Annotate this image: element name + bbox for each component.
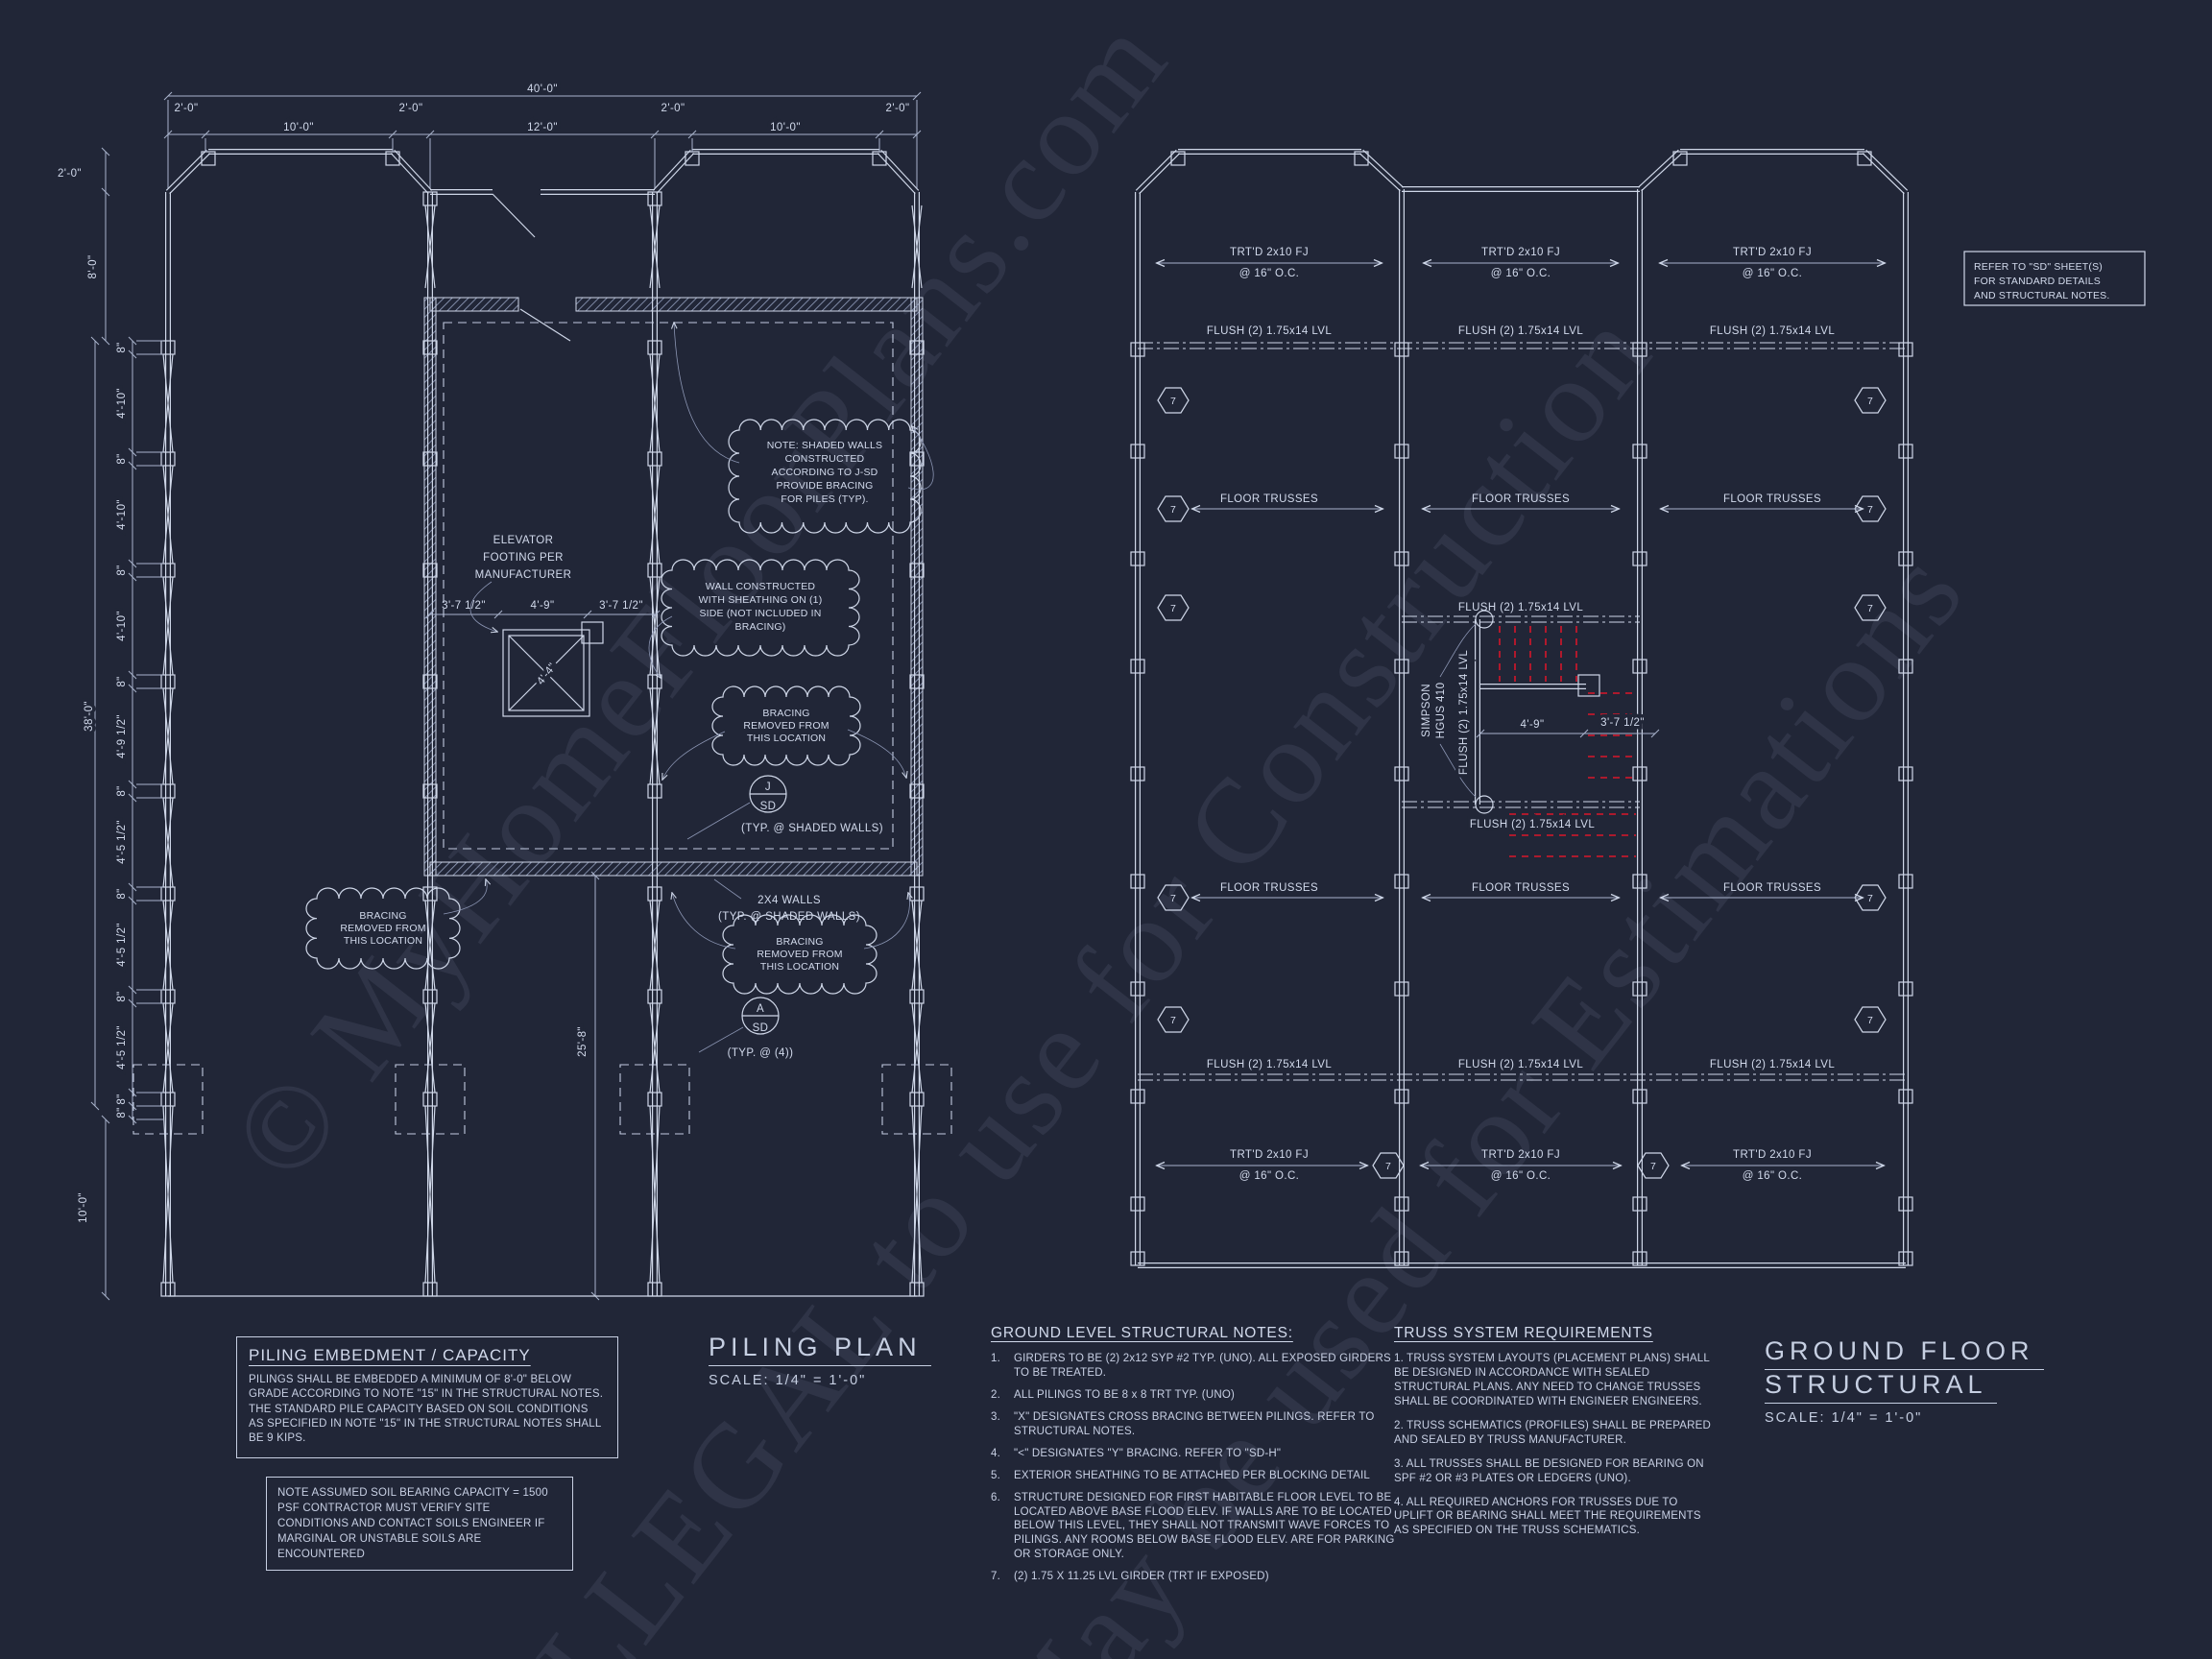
cloud-note: WALL CONSTRUCTED xyxy=(706,581,816,592)
truss-label: FLOOR TRUSSES xyxy=(1220,882,1318,894)
dim: 8" xyxy=(116,676,128,686)
piling-square xyxy=(648,1093,661,1106)
marker-note: (TYP. @ (4)) xyxy=(728,1047,794,1059)
piling-square xyxy=(1633,552,1647,565)
piling-square xyxy=(648,341,661,354)
piling-square xyxy=(648,990,661,1003)
dim: 8" xyxy=(116,1107,128,1118)
dim: 8" xyxy=(116,888,128,899)
girder-label: FLUSH (2) 1.75x14 LVL xyxy=(1710,1059,1835,1070)
x-brace xyxy=(425,205,435,288)
piling-square xyxy=(1131,875,1144,888)
piling-square xyxy=(1395,445,1408,458)
wall-line xyxy=(391,154,428,194)
x-brace xyxy=(912,205,922,288)
wall-label: (TYP. @ SHADED WALLS) xyxy=(718,911,860,923)
ground-floor-title-2: STRUCTURAL xyxy=(1765,1370,1997,1404)
cloud-note: THIS LOCATION xyxy=(747,733,826,744)
dim: 2'-0" xyxy=(661,103,685,114)
piling-square xyxy=(1131,1197,1144,1211)
hexagon-note-number: 7 xyxy=(1170,396,1176,407)
truss-system-requirements: TRUSS SYSTEM REQUIREMENTS 1. TRUSS SYSTE… xyxy=(1394,1325,1711,1548)
shaded-wall xyxy=(424,298,436,876)
dim: 4'-5 1/2" xyxy=(116,820,128,864)
piling-square xyxy=(161,990,175,1003)
piling-square xyxy=(1633,445,1647,458)
ground-note-item: 2.ALL PILINGS TO BE 8 x 8 TRT TYP. (UNO) xyxy=(991,1388,1398,1403)
piling-square xyxy=(1899,552,1912,565)
shaded-wall xyxy=(911,298,923,876)
joist-label: @ 16" O.C. xyxy=(1743,1170,1803,1182)
piling-square xyxy=(161,1283,175,1296)
ground-floor-text: TRT'D 2x10 FJ @ 16" O.C. TRT'D 2x10 FJ @… xyxy=(1207,247,2110,1182)
marker-letter: SD xyxy=(760,801,777,812)
ground-note-item: 7.(2) 1.75 X 11.25 LVL GIRDER (TRT IF EX… xyxy=(991,1570,1398,1584)
cloud-note: BRACING xyxy=(359,910,406,922)
x-brace xyxy=(650,466,660,564)
dim: 2'-0" xyxy=(399,103,423,114)
piling-square xyxy=(161,675,175,688)
cloud-leader xyxy=(674,323,739,463)
cloud-note: PROVIDE BRACING xyxy=(776,480,873,492)
piling-square xyxy=(423,1093,437,1106)
stair-dim: 4'-9" xyxy=(1521,719,1545,731)
x-brace xyxy=(163,1106,173,1283)
wall-label: 2X4 WALLS xyxy=(757,895,821,906)
piling-embedment-body: PILINGS SHALL BE EMBEDDED A MINIMUM OF 8… xyxy=(249,1373,606,1446)
x-brace xyxy=(425,1106,435,1283)
truss-note-item: 2. TRUSS SCHEMATICS (PROFILES) SHALL BE … xyxy=(1394,1419,1711,1448)
piling-square xyxy=(910,887,924,901)
dim: 8" xyxy=(116,565,128,575)
cloud-leader xyxy=(848,730,906,778)
cloud-note: FOR PILES (TYP). xyxy=(781,493,868,505)
truss-note-item: 4. ALL REQUIRED ANCHORS FOR TRUSSES DUE … xyxy=(1394,1496,1711,1539)
cloud-note: BRACING xyxy=(762,708,809,719)
ground-floor-title-1: GROUND FLOOR xyxy=(1765,1336,2044,1370)
x-brace xyxy=(650,1106,660,1283)
dim-overall-width: 40'-0" xyxy=(527,84,558,95)
cloud-note: ACCORDING TO J-SD xyxy=(772,467,878,478)
wall-line xyxy=(1638,150,1678,187)
dashed-pile-footing xyxy=(882,1065,951,1134)
dim: 8" xyxy=(116,342,128,352)
shaded-wall xyxy=(430,298,518,311)
piling-square xyxy=(161,341,175,354)
piling-square xyxy=(648,784,661,798)
hexagon-note-number: 7 xyxy=(1385,1161,1391,1172)
x-brace xyxy=(912,1003,922,1093)
wall-line xyxy=(657,154,694,194)
marker-letter: SD xyxy=(753,1022,769,1034)
x-brace xyxy=(425,1003,435,1093)
truss-label: FLOOR TRUSSES xyxy=(1472,493,1570,505)
joist-label: TRT'D 2x10 FJ xyxy=(1230,1149,1309,1161)
elevator-note: MANUFACTURER xyxy=(475,569,572,581)
piling-plan-scale: SCALE: 1/4" = 1'-0" xyxy=(709,1373,931,1388)
footing-tab xyxy=(582,622,603,643)
piling-square xyxy=(1633,1090,1647,1103)
hexagon-note-number: 7 xyxy=(1867,1015,1873,1026)
cross-bracing xyxy=(163,205,922,1283)
girder-label: FLUSH (2) 1.75x14 LVL xyxy=(1470,819,1595,830)
refer-note: REFER TO "SD" SHEET(S) xyxy=(1974,261,2103,273)
joist-label: TRT'D 2x10 FJ xyxy=(1230,247,1309,258)
girder-label: FLUSH (2) 1.75x14 LVL xyxy=(1458,602,1583,613)
dim: 3'-7 1/2" xyxy=(599,600,643,612)
ground-floor-title-block: GROUND FLOOR STRUCTURAL SCALE: 1/4" = 1'… xyxy=(1765,1336,2044,1426)
piling-square xyxy=(1131,445,1144,458)
girder-label: FLUSH (2) 1.75x14 LVL xyxy=(1207,325,1332,337)
piling-plan-title-block: PILING PLAN SCALE: 1/4" = 1'-0" xyxy=(709,1333,931,1388)
joist-label: TRT'D 2x10 FJ xyxy=(1733,1149,1812,1161)
hexagon-note-number: 7 xyxy=(1170,603,1176,614)
x-brace xyxy=(163,466,173,564)
label-leader xyxy=(714,879,741,899)
piling-square xyxy=(1395,1090,1408,1103)
marker-letter: J xyxy=(765,781,771,793)
ground-note-item: 4."<" DESIGNATES "Y" BRACING. REFER TO "… xyxy=(991,1447,1398,1461)
piling-square xyxy=(1899,445,1912,458)
piling-square xyxy=(648,1283,661,1296)
marker-letter: A xyxy=(757,1003,764,1015)
piling-square xyxy=(161,784,175,798)
dim: 4'-10" xyxy=(116,388,128,419)
piling-plan-linework xyxy=(133,194,951,1296)
joist-label: @ 16" O.C. xyxy=(1239,268,1300,279)
soil-bearing-note: NOTE ASSUMED SOIL BEARING CAPACITY = 150… xyxy=(266,1477,573,1571)
wall-line xyxy=(1136,150,1176,190)
piling-square xyxy=(1131,552,1144,565)
ground-level-structural-notes: GROUND LEVEL STRUCTURAL NOTES: 1.GIRDERS… xyxy=(991,1325,1398,1592)
dim: 8'-0" xyxy=(87,255,99,279)
piling-square xyxy=(1131,660,1144,673)
hexagon-note-number: 7 xyxy=(1170,1015,1176,1026)
piling-square xyxy=(1899,875,1912,888)
dim: 4'-9" xyxy=(531,600,555,612)
piling-plan-text: 40'-0" 2'-0" 10'-0" 2'-0" 12'-0" 2'-0" 1… xyxy=(58,84,909,1223)
dim: 8" xyxy=(116,453,128,464)
dim: 10'-0" xyxy=(78,1192,89,1223)
piling-square xyxy=(1899,1090,1912,1103)
piling-square xyxy=(648,887,661,901)
blueprint-sheet: © MyHomeFloorPlans.com ILLEGAL to use fo… xyxy=(0,0,2212,1659)
truss-label: FLOOR TRUSSES xyxy=(1220,493,1318,505)
truss-label: FLOOR TRUSSES xyxy=(1472,882,1570,894)
ground-note-item: 3."X" DESIGNATES CROSS BRACING BETWEEN P… xyxy=(991,1410,1398,1439)
piling-square xyxy=(910,1283,924,1296)
elevator-note: ELEVATOR xyxy=(493,535,554,546)
wall-line xyxy=(1140,154,1180,194)
piling-square xyxy=(910,1093,924,1106)
wall-line xyxy=(1363,150,1404,187)
piling-square xyxy=(1131,767,1144,781)
wall-line xyxy=(170,154,210,194)
x-brace xyxy=(650,354,660,452)
hexagon-note-number: 7 xyxy=(1170,893,1176,904)
x-brace xyxy=(163,1003,173,1093)
girder-label: FLUSH (2) 1.75x14 LVL xyxy=(1710,325,1835,337)
piling-square xyxy=(1899,660,1912,673)
piling-plan-title: PILING PLAN xyxy=(709,1333,931,1366)
ground-floor-scale: SCALE: 1/4" = 1'-0" xyxy=(1765,1410,2044,1426)
hexagon-note-number: 7 xyxy=(1867,603,1873,614)
hexagon-note-number: 7 xyxy=(1650,1161,1656,1172)
wall-line xyxy=(881,150,919,190)
x-brace xyxy=(163,354,173,452)
piling-square xyxy=(1131,343,1144,356)
piling-embedment-note: PILING EMBEDMENT / CAPACITY PILINGS SHAL… xyxy=(236,1336,618,1458)
ground-note-item: 5.EXTERIOR SHEATHING TO BE ATTACHED PER … xyxy=(991,1469,1398,1483)
cloud-leader xyxy=(444,879,487,914)
joist-label: TRT'D 2x10 FJ xyxy=(1733,247,1812,258)
piling-square xyxy=(161,452,175,466)
x-brace xyxy=(650,205,660,288)
dim: 2'-0" xyxy=(886,103,910,114)
shaded-wall xyxy=(430,862,917,876)
door-leaf xyxy=(520,309,570,341)
dim: 3'-7 1/2" xyxy=(442,600,486,612)
x-brace xyxy=(650,688,660,784)
truss-note-item: 3. ALL TRUSSES SHALL BE DESIGNED FOR BEA… xyxy=(1394,1457,1711,1486)
wall-line xyxy=(1642,154,1682,191)
dim: 10'-0" xyxy=(770,122,801,133)
girder-label: FLUSH (2) 1.75x14 LVL xyxy=(1458,1059,1583,1070)
piling-square xyxy=(1633,767,1647,781)
piling-square xyxy=(1899,343,1912,356)
dim: 12'-0" xyxy=(527,122,558,133)
piling-square xyxy=(648,564,661,577)
wall-line xyxy=(1863,154,1904,194)
dim: 25'-8" xyxy=(577,1026,589,1057)
span-arrows xyxy=(1157,263,1885,1166)
x-brace xyxy=(163,798,173,887)
piling-square xyxy=(1395,552,1408,565)
dashed-pile-footing xyxy=(620,1065,689,1134)
piling-square xyxy=(1395,982,1408,996)
simpson-label: HGUS 410 xyxy=(1435,683,1447,739)
piling-square xyxy=(910,990,924,1003)
marker-note: (TYP. @ SHADED WALLS) xyxy=(741,823,883,834)
cloud-note: THIS LOCATION xyxy=(760,961,839,973)
cloud-note: REMOVED FROM xyxy=(340,923,425,934)
cloud-note: NOTE: SHADED WALLS xyxy=(767,440,882,451)
piling-square xyxy=(1899,1197,1912,1211)
girder-label: FLUSH (2) 1.75x14 LVL xyxy=(1458,325,1583,337)
dim-overall-height: 38'-0" xyxy=(84,701,95,732)
piling-square xyxy=(1633,1197,1647,1211)
dim: 4'-10" xyxy=(116,499,128,530)
dashed-pile-footing xyxy=(396,1065,465,1134)
cloud-note: REMOVED FROM xyxy=(743,720,829,732)
hexagon-note-number: 7 xyxy=(1867,396,1873,407)
cloud-note: BRACING xyxy=(776,936,823,948)
wall-line xyxy=(653,150,690,190)
joist-label: TRT'D 2x10 FJ xyxy=(1481,1149,1560,1161)
cloud-note: SIDE (NOT INCLUDED IN xyxy=(699,608,821,619)
door-leaf xyxy=(493,194,535,237)
piling-square xyxy=(423,1283,437,1296)
ground-note-item: 6.STRUCTURE DESIGNED FOR FIRST HABITABLE… xyxy=(991,1491,1398,1563)
hexagon-note-number: 7 xyxy=(1867,504,1873,516)
piling-square xyxy=(1395,875,1408,888)
truss-label: FLOOR TRUSSES xyxy=(1723,882,1821,894)
x-brace xyxy=(163,901,173,990)
hexagon-note-number: 7 xyxy=(1170,504,1176,516)
wall-line xyxy=(395,150,432,190)
piling-square xyxy=(1131,982,1144,996)
shaded-wall xyxy=(576,298,917,311)
dim: 4'-5 1/2" xyxy=(116,923,128,967)
wall-line xyxy=(166,150,206,190)
joist-label: @ 16" O.C. xyxy=(1491,268,1551,279)
simpson-label: SIMPSON xyxy=(1421,684,1432,737)
piling-square xyxy=(1899,767,1912,781)
girder-label: FLUSH (2) 1.75x14 LVL xyxy=(1207,1059,1332,1070)
dim: 4'-5 1/2" xyxy=(116,1025,128,1070)
joist-label: @ 16" O.C. xyxy=(1239,1170,1300,1182)
cloud-note: WITH SHEATHING ON (1) xyxy=(699,594,823,606)
truss-label: FLOOR TRUSSES xyxy=(1723,493,1821,505)
x-brace xyxy=(163,577,173,675)
dashed-pile-footing xyxy=(133,1065,203,1134)
ground-floor-linework xyxy=(1157,252,2145,1166)
dim: 4'-9 1/2" xyxy=(116,714,128,758)
elevator-note: FOOTING PER xyxy=(483,552,564,564)
piling-square xyxy=(1395,660,1408,673)
cloud-note: CONSTRUCTED xyxy=(785,453,865,465)
x-brace xyxy=(912,901,922,990)
x-brace xyxy=(163,688,173,784)
dim: 2'-0" xyxy=(58,168,82,180)
wall-line xyxy=(1866,150,1908,190)
piling-square xyxy=(161,887,175,901)
dim: 2'-0" xyxy=(175,103,199,114)
piling-embedment-title: PILING EMBEDMENT / CAPACITY xyxy=(249,1346,606,1365)
hanger-callout-circle xyxy=(1476,796,1493,813)
cloud-note: THIS LOCATION xyxy=(344,935,422,947)
piling-square xyxy=(1633,982,1647,996)
refer-note: AND STRUCTURAL NOTES. xyxy=(1974,290,2110,301)
truss-note-item: 1. TRUSS SYSTEM LAYOUTS (PLACEMENT PLANS… xyxy=(1394,1352,1711,1409)
dim: 4'-10" xyxy=(116,611,128,641)
piling-square xyxy=(1633,660,1647,673)
dim: 8" xyxy=(116,1094,128,1104)
ground-notes-title: GROUND LEVEL STRUCTURAL NOTES: xyxy=(991,1325,1398,1342)
piling-square xyxy=(648,452,661,466)
cloud-note: REMOVED FROM xyxy=(757,949,842,960)
piling-square xyxy=(1395,343,1408,356)
stair-dim: 3'-7 1/2" xyxy=(1600,717,1645,729)
piling-square xyxy=(161,1093,175,1106)
cloud-leader xyxy=(864,893,909,949)
piling-square xyxy=(1131,1090,1144,1103)
dim: 10'-0" xyxy=(283,122,314,133)
joist-label: @ 16" O.C. xyxy=(1491,1170,1551,1182)
girder-label: FLUSH (2) 1.75x14 LVL xyxy=(1458,650,1470,775)
hexagon-note-number: 7 xyxy=(1867,893,1873,904)
joist-label: @ 16" O.C. xyxy=(1743,268,1803,279)
truss-title: TRUSS SYSTEM REQUIREMENTS xyxy=(1394,1325,1711,1342)
shaded-walls xyxy=(424,298,923,876)
wall-line xyxy=(1359,154,1400,191)
refer-note: FOR STANDARD DETAILS xyxy=(1974,276,2101,287)
piling-square xyxy=(1395,1197,1408,1211)
piling-square xyxy=(1395,767,1408,781)
piling-square xyxy=(423,990,437,1003)
dim: 8" xyxy=(116,991,128,1001)
x-brace xyxy=(650,1003,660,1093)
dim: 8" xyxy=(116,785,128,796)
ground-note-item: 1.GIRDERS TO BE (2) 2x12 SYP #2 TYP. (UN… xyxy=(991,1352,1398,1381)
cloud-note: BRACING) xyxy=(735,621,786,633)
joist-label: TRT'D 2x10 FJ xyxy=(1481,247,1560,258)
piling-square xyxy=(161,564,175,577)
piling-square xyxy=(1633,875,1647,888)
x-brace xyxy=(425,901,435,990)
wall-line xyxy=(878,154,915,194)
piling-square xyxy=(1899,982,1912,996)
piling-square xyxy=(1633,343,1647,356)
x-brace xyxy=(912,1106,922,1283)
x-brace xyxy=(650,901,660,990)
